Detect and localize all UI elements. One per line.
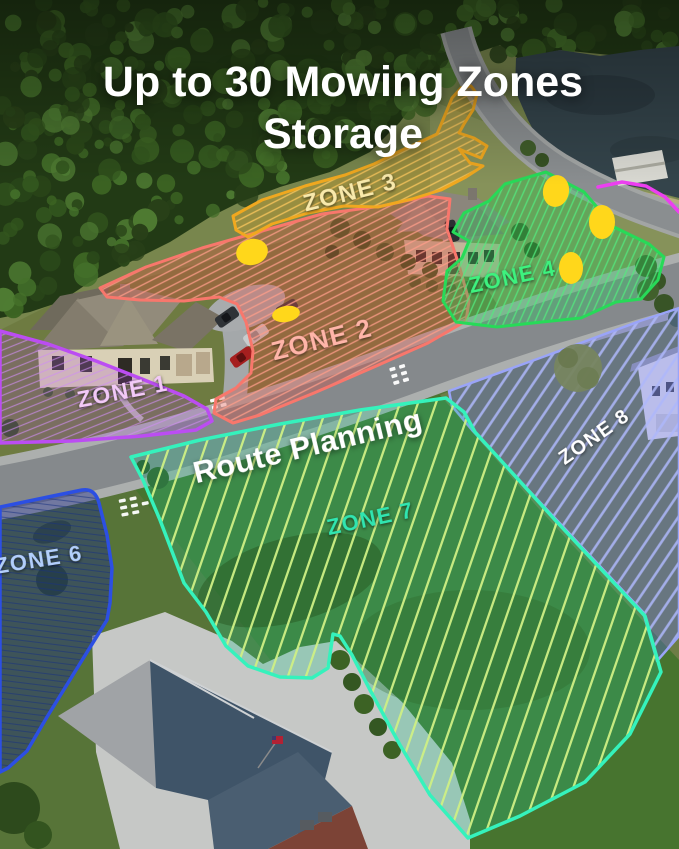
obstacle-marker [589,205,615,239]
obstacle-marker [559,252,583,284]
aerial-scene: ZONE 1 ZONE 2 ZONE 3 ZONE 4 ZONE 8 [0,0,679,849]
headline-line2: Storage [263,110,423,158]
large-tree [554,344,602,392]
headline-line1: Up to 30 Mowing Zones [103,58,583,106]
marketing-image: ZONE 1 ZONE 2 ZONE 3 ZONE 4 ZONE 8 [0,0,679,849]
